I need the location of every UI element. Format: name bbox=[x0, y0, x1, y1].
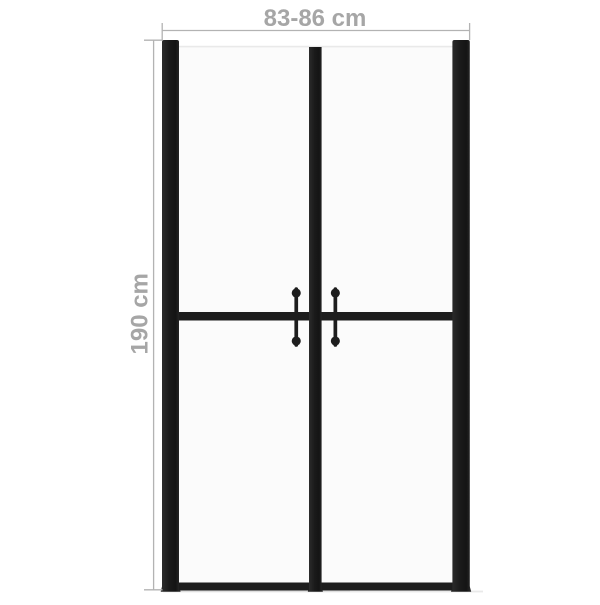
svg-text:190 cm: 190 cm bbox=[127, 273, 154, 354]
svg-text:83-86 cm: 83-86 cm bbox=[264, 5, 367, 32]
